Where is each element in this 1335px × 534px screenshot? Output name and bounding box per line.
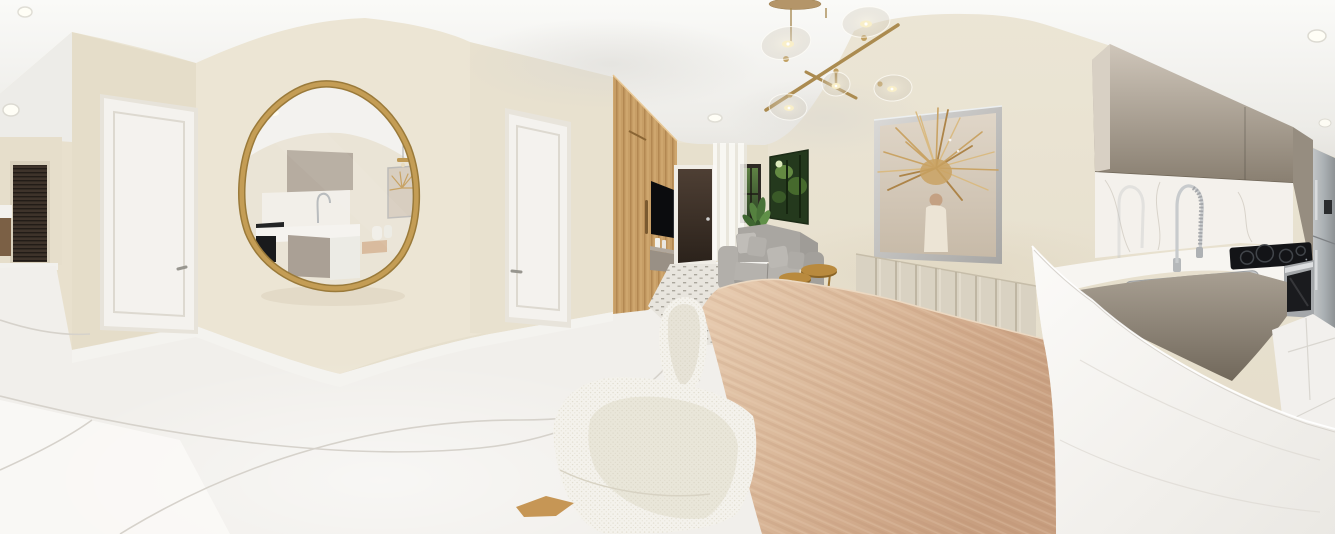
pampas-wall-art	[874, 106, 1002, 264]
hallway-door-dark	[674, 165, 716, 266]
tv-screen	[651, 181, 674, 238]
left-counter-top	[0, 205, 12, 218]
door-leaf	[104, 98, 194, 330]
forest-art-sunglow	[776, 161, 783, 168]
panorama-image: 360-degree panorama of a modern apartmen…	[0, 0, 1335, 534]
pampas-glass-glint-1	[949, 139, 952, 142]
chandelier-canopy	[769, 0, 821, 10]
slatted-door-slats	[13, 165, 47, 262]
left-counter-cabinet	[0, 218, 11, 256]
hidden-door-handle	[645, 200, 648, 234]
dining-chair-near	[553, 377, 756, 534]
hallway-door-left	[100, 94, 198, 334]
pampas-woman-blouse	[924, 205, 948, 252]
pampas-woman-head	[930, 194, 943, 207]
recessed-light-hallway	[3, 104, 19, 116]
pampas-core	[920, 159, 952, 185]
faucet-nozzle	[1196, 247, 1203, 258]
fridge-handle-2	[1315, 250, 1318, 290]
dark-door-handle	[706, 217, 710, 221]
ceiling-shade-1	[460, 18, 760, 110]
upper-cabinet-side	[1092, 44, 1110, 172]
forest-art-foliage-3	[772, 191, 786, 203]
recessed-light-4	[1319, 119, 1331, 127]
chair-near-texture	[553, 377, 756, 534]
hallway-door-right	[505, 108, 571, 328]
throw-pillow-3	[766, 245, 789, 268]
wall-oven	[1284, 260, 1314, 318]
forest-art-foliage-2	[787, 177, 807, 195]
recessed-light-2	[708, 114, 722, 122]
forest-wall-art	[770, 150, 808, 224]
door-handle	[512, 271, 521, 272]
door-handle	[178, 267, 186, 269]
throw-pillow-2	[747, 236, 767, 257]
fridge-handle-1	[1315, 180, 1318, 220]
refrigerator	[1313, 148, 1335, 332]
pampas-glass-glint-2	[957, 150, 959, 152]
dark-door-leaf	[678, 169, 712, 263]
fridge-control-panel	[1324, 200, 1332, 214]
throw-pillow-4	[787, 251, 805, 270]
recessed-light-3	[1308, 30, 1326, 42]
recessed-light-1	[18, 7, 32, 17]
